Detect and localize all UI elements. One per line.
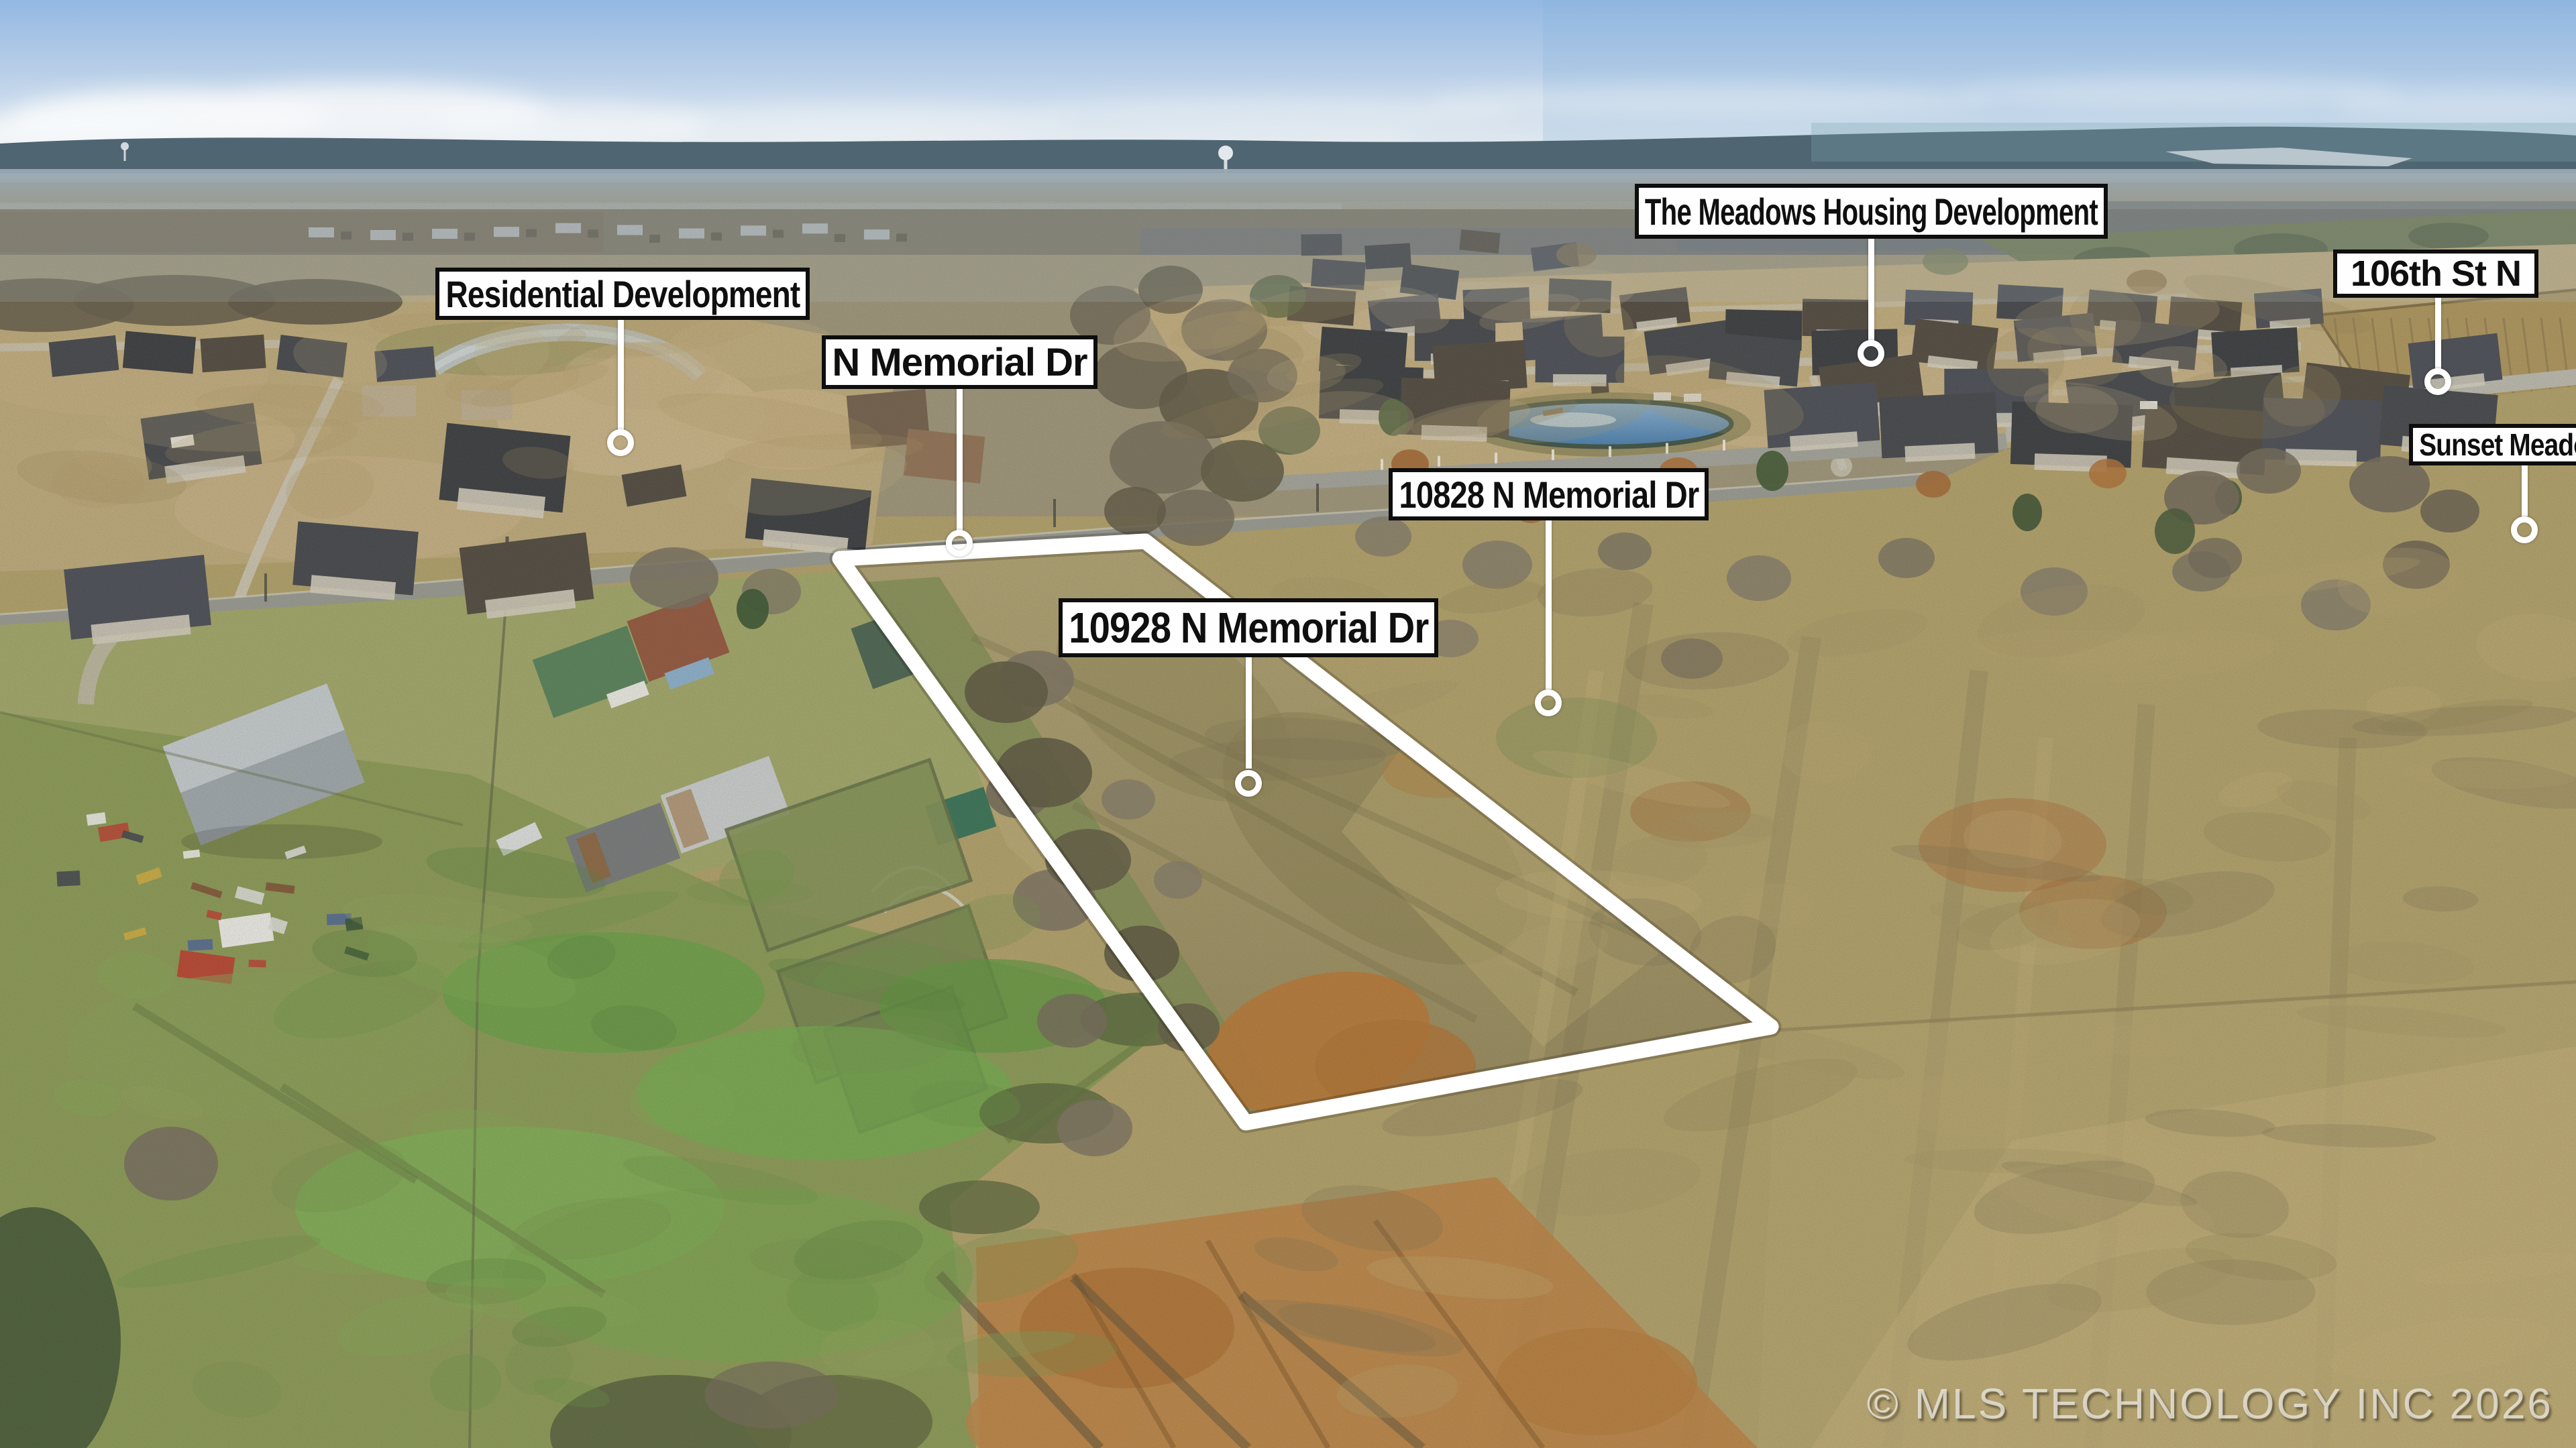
label-text: The Meadows Housing Development	[1645, 190, 2098, 233]
label-box-10928-n-memorial-dr: 10928 N Memorial Dr	[1059, 598, 1438, 657]
label-text: 10928 N Memorial Dr	[1069, 603, 1428, 653]
leader-line	[2522, 465, 2528, 516]
marker-ring-icon	[1535, 689, 1562, 716]
leader-line	[1546, 520, 1552, 689]
label-box-sunset-meadow: Sunset Meadow	[2409, 424, 2576, 465]
leader-line	[1246, 657, 1252, 769]
marker-ring-icon	[2511, 516, 2538, 543]
label-box-106th-st-n: 106th St N	[2333, 249, 2538, 298]
leader-line	[618, 320, 624, 431]
mls-watermark: © MLS TECHNOLOGY INC 2026	[1867, 1379, 2553, 1429]
label-text: 106th St N	[2351, 253, 2521, 294]
leader-line	[1868, 239, 1874, 341]
label-text: N Memorial Dr	[832, 340, 1087, 385]
leader-line	[2435, 298, 2441, 369]
marker-ring-icon	[1858, 340, 1884, 367]
aerial-listing-photo: Residential Development N Memorial Dr Th…	[0, 0, 2576, 1448]
label-box-residential-development: Residential Development	[435, 268, 810, 320]
marker-ring-icon	[946, 530, 973, 557]
label-text: Residential Development	[445, 272, 800, 316]
annotation-layer: Residential Development N Memorial Dr Th…	[0, 0, 2576, 1448]
marker-ring-icon	[607, 429, 634, 456]
label-box-n-memorial-dr: N Memorial Dr	[822, 335, 1097, 389]
label-box-10828-n-memorial-dr: 10828 N Memorial Dr	[1389, 468, 1709, 520]
marker-ring-icon	[1235, 770, 1262, 797]
marker-ring-icon	[2424, 368, 2451, 395]
label-box-meadows-housing-development: The Meadows Housing Development	[1635, 184, 2108, 239]
label-text: 10828 N Memorial Dr	[1399, 473, 1699, 516]
leader-line	[957, 389, 963, 531]
label-text: Sunset Meadow	[2419, 427, 2576, 463]
